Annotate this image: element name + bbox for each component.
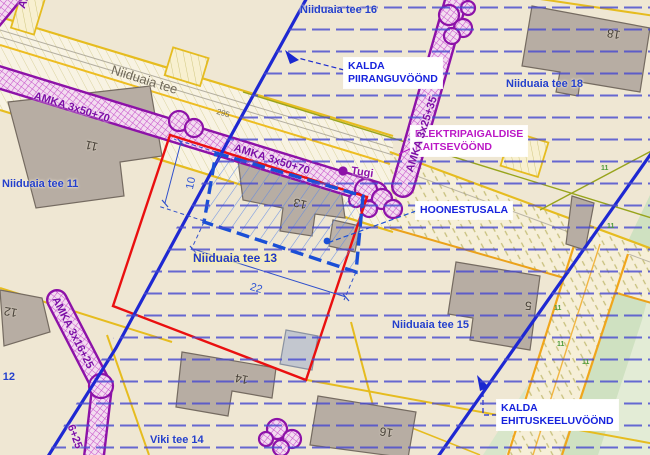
building-number-18: 18 [606, 25, 622, 42]
cable-label-amka-1: AMKA 3x50+70 [32, 90, 111, 127]
callout-kalda-piiranguvoond: KALDA PIIRANGUVÖÖND [344, 58, 442, 88]
building-number-13: 13 [292, 194, 308, 212]
veg-mark-4: 11 [557, 341, 564, 350]
building-number-11: 11 [84, 137, 100, 154]
cable-label-amka-partial: AM [16, 0, 35, 11]
building-number-5: 5 [524, 297, 532, 313]
map-labels-layer: Niiduaia tee 16Niiduaia tee 18Niiduaia t… [0, 0, 650, 455]
building-number-14: 14 [234, 370, 250, 387]
dimension-10: 10 [184, 176, 200, 191]
callout-kalda-ehituskeeluvoond: KALDA EHITUSKEELUVÖÖND [497, 400, 618, 430]
dimension-22: 22 [248, 281, 264, 298]
building-number-12: 12 [3, 303, 19, 320]
road-station-295: 295 [215, 107, 231, 120]
veg-mark-2: 11 [607, 223, 614, 232]
map-canvas[interactable]: Niiduaia tee 16Niiduaia tee 18Niiduaia t… [0, 0, 650, 455]
parcel-label-niiduaia-tee-16: Niiduaia tee 16 [300, 4, 377, 18]
parcel-label-niiduaia-tee-11: Niiduaia tee 11 [2, 178, 78, 192]
cable-label-amka-5: 6+25 [63, 423, 84, 451]
callout-hoonestusala: HOONESTUSALA [416, 202, 512, 219]
cable-label-amka-2: AMKA 3x50+70 [232, 142, 311, 179]
pole-label-tugi: Tugi [350, 165, 374, 182]
cable-label-amka-4: AMKA 3x16+25 [48, 295, 96, 371]
veg-mark-1: 11 [601, 165, 608, 174]
road-name-niiduaia-tee: Niiduaia tee [109, 62, 179, 98]
veg-mark-3: 11 [554, 305, 561, 314]
parcel-label-niiduaia-tee-15: Niiduaia tee 15 [392, 319, 469, 333]
building-number-16: 16 [379, 423, 394, 440]
parcel-label-viki-tee-14: Viki tee 14 [150, 434, 204, 448]
parcel-label-niiduaia-tee-12: Niiduaia tee 12 [0, 371, 15, 385]
parcel-label-niiduaia-tee-13: Niiduaia tee 13 [193, 251, 277, 266]
parcel-label-niiduaia-tee-18: Niiduaia tee 18 [506, 78, 583, 92]
veg-mark-5: 11 [582, 359, 589, 368]
